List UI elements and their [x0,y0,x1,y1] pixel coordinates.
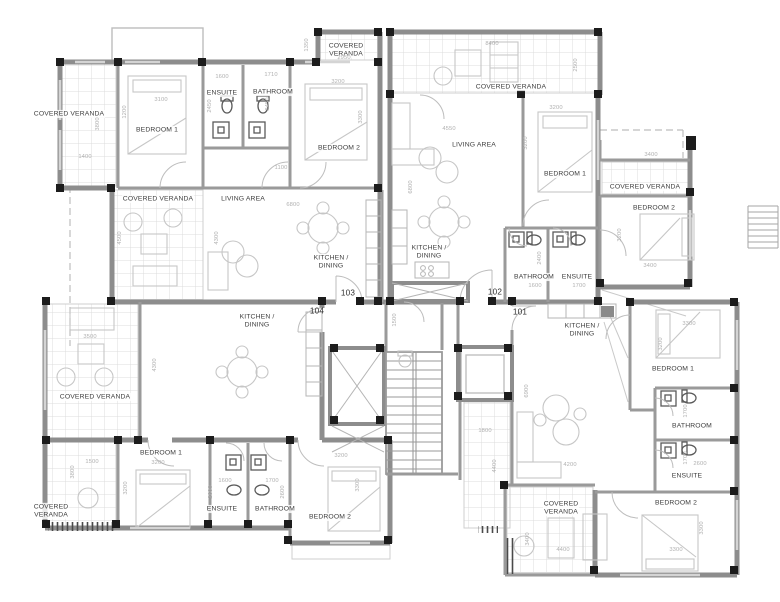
apt104-covered-veranda-bottom: COVERED VERANDA [33,503,69,519]
dim-label-28: 4400 [492,459,499,472]
dim-label-9: 3300 [358,110,365,123]
dim-label-26: 1500 [392,313,399,326]
apt104-ensuite: ENSUITE [206,505,238,513]
dim-label-6: 1710 [264,72,277,79]
apt103-kitchen-dining: KITCHEN / DINING [313,254,349,270]
dim-label-47: 3800 [70,465,77,478]
dim-label-46: 3200 [123,481,130,494]
apt101-bedroom1: BEDROOM 1 [651,365,694,373]
dim-label-20: 3400 [644,152,657,159]
unit-number-103: 103 [341,289,355,299]
dim-label-36: 3300 [699,521,706,534]
dim-label-31: 3300 [682,321,695,328]
apt103-bedroom2: BEDROOM 2 [317,144,360,152]
apt102-covered-veranda-top: COVERED VERANDA [475,83,547,91]
unit-number-101: 101 [513,308,527,318]
apt103-bedroom1: BEDROOM 1 [135,126,178,134]
dim-label-19: 3200 [523,136,530,149]
dim-label-5: 2450 [207,99,214,112]
dim-label-22: 3400 [643,263,656,270]
apt101-bathroom: BATHROOM [671,422,712,430]
apt103-covered-veranda-mid: COVERED VERANDA [122,195,194,203]
unit-number-102: 102 [488,288,502,298]
apt104-kitchen-dining: KITCHEN / DINING [239,313,275,329]
apt102-bedroom1: BEDROOM 1 [543,170,586,178]
dim-label-42: 4300 [214,231,221,244]
dim-label-27: 1800 [478,428,491,435]
dim-label-52: 3200 [334,453,347,460]
dim-label-53: 3300 [355,478,362,491]
dim-label-40: 3500 [83,334,96,341]
dim-label-48: 1600 [218,478,231,485]
apt101-covered-veranda: COVERED VERANDA [543,500,579,516]
apt104-bedroom1: BEDROOM 1 [139,449,182,457]
apt102-covered-veranda-right: COVERED VERANDA [609,183,681,191]
apt103-living-area: LIVING AREA [220,195,265,203]
apt102-kitchen-dining: KITCHEN / DINING [411,244,447,260]
apt104-bedroom2: BEDROOM 2 [308,513,351,521]
dim-label-37: 3300 [669,547,682,554]
dim-label-51: 2600 [280,485,287,498]
dim-label-45: 3200 [151,460,164,467]
dim-label-39: 3400 [525,532,532,545]
dim-label-16: 2500 [573,58,580,71]
unit-number-104: 104 [310,307,324,317]
dim-label-10: 1100 [275,165,288,172]
dim-label-2: 3800 [95,117,102,130]
dim-label-8: 3200 [331,79,344,86]
dim-label-12: 1350 [304,38,311,51]
dim-label-34: 1700 [683,451,690,464]
dim-label-41: 4500 [117,231,124,244]
apt102-bedroom2: BEDROOM 2 [632,204,675,212]
dim-label-29: 6900 [524,384,531,397]
label-layer: COVERED VERANDABEDROOM 1ENSUITEBATHROOMB… [0,0,780,602]
apt101-kitchen-dining: KITCHEN / DINING [564,322,600,338]
dim-label-33: 1700 [683,404,690,417]
floor-plan-canvas: COVERED VERANDABEDROOM 1ENSUITEBATHROOMB… [0,0,780,602]
apt103-ensuite: ENSUITE [206,89,238,97]
apt101-ensuite: ENSUITE [671,472,703,480]
dim-label-50: 2600 [208,485,215,498]
dim-label-43: 4300 [152,358,159,371]
dim-label-32: 3200 [658,337,665,350]
dim-label-14: 6800 [408,180,415,193]
apt104-bathroom: BATHROOM [254,505,295,513]
dim-label-21: 3200 [617,228,624,241]
dim-label-25: 2400 [537,251,544,264]
dim-label-4: 1600 [215,74,228,81]
apt102-bathroom: BATHROOM [513,273,554,281]
dim-label-17: 4550 [442,126,455,133]
dim-label-18: 3200 [549,105,562,112]
dim-label-35: 2600 [693,461,706,468]
dim-label-1: 1200 [122,105,129,118]
apt102-ensuite: ENSUITE [561,273,593,281]
dim-label-15: 8400 [485,41,498,48]
dim-label-38: 4400 [556,547,569,554]
dim-label-13: 6800 [286,202,299,209]
dim-label-30: 4200 [563,462,576,469]
dim-label-23: 1600 [528,283,541,290]
dim-label-24: 1700 [572,283,585,290]
dim-label-44: 1500 [85,459,98,466]
apt101-bedroom2: BEDROOM 2 [654,499,697,507]
dim-label-11: 2950 [337,55,350,62]
apt104-covered-veranda-mid: COVERED VERANDA [59,393,131,401]
dim-label-7: 2450 [265,97,272,110]
dim-label-49: 1700 [265,478,278,485]
dim-label-0: 3100 [154,97,167,104]
apt102-living-area: LIVING AREA [451,141,496,149]
apt103-bathroom: BATHROOM [252,88,293,96]
dim-label-3: 1400 [78,154,91,161]
